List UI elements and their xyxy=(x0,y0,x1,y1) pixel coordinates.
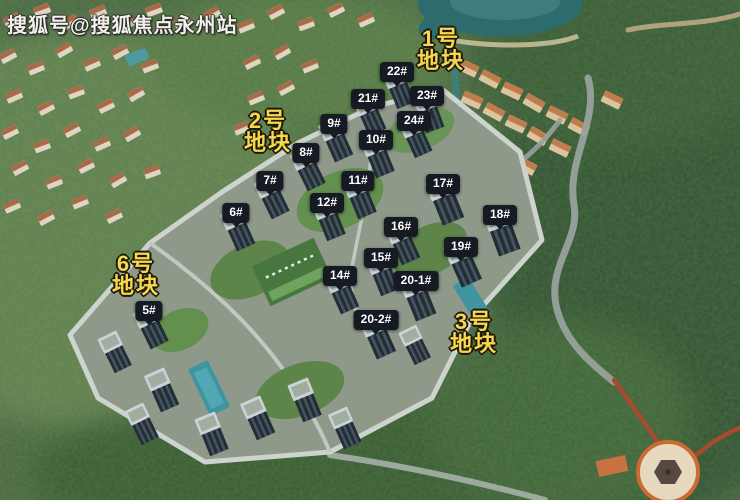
building-tag-12: 12# xyxy=(310,193,344,213)
zone-label-1: 1号 地块 xyxy=(417,28,465,72)
building-tag-6: 6# xyxy=(222,203,249,223)
building-tag-24: 24# xyxy=(397,111,431,131)
building-tag-21: 21# xyxy=(351,89,385,109)
building-tag-8: 8# xyxy=(292,143,319,163)
zone-label-6-line2: 地块 xyxy=(112,275,160,297)
building-tag-22: 22# xyxy=(380,62,414,82)
building-tag-14: 14# xyxy=(323,266,357,286)
watermark: 搜狐号@搜狐焦点永州站 xyxy=(7,9,238,38)
zone-label-2: 2号 地块 xyxy=(244,110,292,154)
building-tag-16: 16# xyxy=(384,217,418,237)
zone-label-1-line1: 1号 xyxy=(417,28,465,50)
zone-label-3-line1: 3号 xyxy=(450,311,498,333)
zone-label-6-line1: 6号 xyxy=(112,253,160,275)
zone-label-3-line2: 地块 xyxy=(450,333,498,355)
building-tag-18: 18# xyxy=(483,205,517,225)
building-tag-19: 19# xyxy=(444,237,478,257)
building-tag-23: 23# xyxy=(410,86,444,106)
zone-label-6: 6号 地块 xyxy=(112,253,160,297)
building-tag-20-1: 20-1# xyxy=(394,271,439,291)
zone-label-2-line1: 2号 xyxy=(244,110,292,132)
building-tag-7: 7# xyxy=(256,171,283,191)
building-tag-17: 17# xyxy=(426,174,460,194)
aerial-masterplan-image: 搜狐号@搜狐焦点永州站 1号 地块 2号 地块 6号 地块 3号 地块 22# … xyxy=(0,0,740,500)
building-tag-9: 9# xyxy=(320,114,347,134)
building-tag-20-2: 20-2# xyxy=(354,310,399,330)
building-tag-15: 15# xyxy=(364,248,398,268)
building-tag-11: 11# xyxy=(341,171,374,191)
zone-label-3: 3号 地块 xyxy=(450,311,498,355)
zone-label-1-line2: 地块 xyxy=(417,50,465,72)
zone-label-2-line2: 地块 xyxy=(244,132,292,154)
building-tag-10: 10# xyxy=(359,130,393,150)
building-tag-5: 5# xyxy=(135,301,162,321)
